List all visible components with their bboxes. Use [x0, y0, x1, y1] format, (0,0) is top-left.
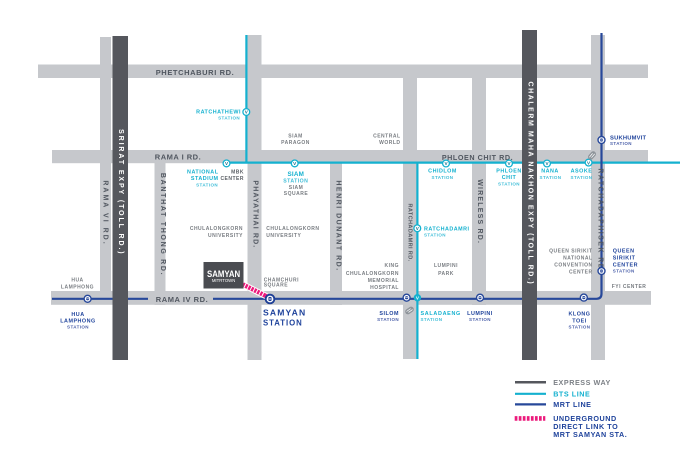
svg-text:CHIDLOM: CHIDLOM [428, 169, 457, 175]
svg-text:NANA: NANA [541, 169, 559, 175]
svg-text:EXPRESS WAY: EXPRESS WAY [553, 378, 611, 387]
svg-text:STATION: STATION [432, 175, 454, 180]
svg-text:WIRELESS RD.: WIRELESS RD. [476, 179, 483, 244]
svg-text:SRIRAT EXPY (TOLL RD.): SRIRAT EXPY (TOLL RD.) [117, 129, 124, 255]
svg-text:MITRTOWN: MITRTOWN [212, 278, 236, 283]
svg-text:STATION: STATION [283, 179, 308, 185]
svg-text:LAMPHONG: LAMPHONG [61, 284, 94, 290]
svg-text:MRT LINE: MRT LINE [553, 400, 591, 409]
svg-text:FYI CENTER: FYI CENTER [612, 284, 647, 290]
svg-text:HUA: HUA [71, 312, 84, 318]
svg-text:CONVENTION: CONVENTION [554, 263, 592, 269]
svg-text:CHALERM MAHA NAKHON EXPY (TOLL: CHALERM MAHA NAKHON EXPY (TOLL RD.) [527, 82, 534, 286]
svg-text:SIAM: SIAM [288, 171, 305, 178]
svg-text:STATION: STATION [571, 175, 593, 180]
svg-text:STADIUM: STADIUM [191, 176, 219, 182]
svg-text:PHLOEN CHIT RD.: PHLOEN CHIT RD. [442, 153, 513, 162]
svg-text:CENTER: CENTER [220, 176, 244, 182]
svg-text:RATCHADAMRI RD.: RATCHADAMRI RD. [406, 204, 412, 262]
svg-text:CHULALONGKORN: CHULALONGKORN [346, 271, 399, 277]
svg-text:BTS LINE: BTS LINE [553, 389, 590, 398]
svg-text:SQUARE: SQUARE [264, 283, 289, 289]
svg-text:STATION: STATION [613, 268, 635, 273]
svg-text:UNIVERSITY: UNIVERSITY [266, 233, 301, 239]
svg-text:KLONG: KLONG [569, 312, 591, 318]
svg-text:STATION: STATION [263, 318, 303, 327]
svg-text:ASOKE: ASOKE [571, 169, 593, 175]
svg-text:BANTHAT THONG RD.: BANTHAT THONG RD. [159, 173, 166, 276]
svg-text:STATION: STATION [610, 141, 632, 146]
svg-text:HUA: HUA [71, 278, 83, 284]
svg-text:SIAM: SIAM [289, 185, 304, 191]
svg-text:CHULALONGKORN: CHULALONGKORN [190, 226, 243, 232]
svg-text:MRT SAMYAN STA.: MRT SAMYAN STA. [553, 430, 627, 439]
svg-text:QUEEN SIRIKIT: QUEEN SIRIKIT [549, 249, 592, 255]
svg-text:RAMA I RD.: RAMA I RD. [155, 153, 201, 162]
svg-text:NATIONAL: NATIONAL [563, 256, 592, 262]
svg-text:MBK: MBK [231, 170, 244, 176]
svg-text:STATION: STATION [67, 324, 89, 329]
svg-text:CHULALONGKORN: CHULALONGKORN [266, 226, 319, 232]
svg-text:STATION: STATION [196, 183, 218, 188]
svg-text:RAMA IV RD.: RAMA IV RD. [156, 295, 208, 304]
svg-text:STATION: STATION [421, 317, 443, 322]
svg-text:STATION: STATION [540, 175, 562, 180]
svg-text:LUMPINI: LUMPINI [434, 263, 458, 269]
svg-text:KING: KING [385, 263, 400, 269]
svg-text:NATIONAL: NATIONAL [187, 170, 219, 176]
svg-text:WORLD: WORLD [379, 140, 400, 146]
svg-text:SIRIKIT: SIRIKIT [613, 255, 636, 261]
svg-text:HOSPITAL: HOSPITAL [370, 285, 399, 291]
svg-text:CENTER: CENTER [569, 270, 593, 276]
svg-text:STATION: STATION [377, 317, 399, 322]
svg-text:SAMYAN: SAMYAN [263, 308, 306, 318]
svg-text:PARAGON: PARAGON [281, 140, 310, 146]
svg-text:UNIVERSITY: UNIVERSITY [208, 233, 243, 239]
svg-text:PHETCHABURI RD.: PHETCHABURI RD. [156, 68, 235, 77]
svg-text:RATCHADAMRI: RATCHADAMRI [424, 227, 470, 233]
svg-text:QUEEN: QUEEN [613, 248, 635, 254]
svg-text:RATCHADAPHISEK RD.: RATCHADAPHISEK RD. [596, 168, 603, 273]
svg-text:STATION: STATION [218, 115, 240, 120]
svg-text:PARK: PARK [438, 271, 454, 277]
svg-text:STATION: STATION [569, 324, 591, 329]
svg-text:SIAM: SIAM [288, 133, 303, 139]
svg-text:STATION: STATION [424, 233, 446, 238]
svg-text:SQUARE: SQUARE [284, 191, 309, 197]
svg-text:PHLOEN: PHLOEN [496, 169, 521, 175]
svg-text:STATION: STATION [498, 181, 520, 186]
svg-text:RAMA VI RD.: RAMA VI RD. [102, 180, 109, 245]
svg-text:CENTRAL: CENTRAL [373, 134, 400, 140]
svg-text:MEMORIAL: MEMORIAL [368, 278, 399, 284]
svg-text:CHIT: CHIT [502, 175, 517, 181]
svg-text:PHAYATHAI RD.: PHAYATHAI RD. [251, 180, 258, 248]
svg-text:HENRI DUNANT RD.: HENRI DUNANT RD. [335, 180, 342, 271]
svg-text:STATION: STATION [469, 317, 491, 322]
